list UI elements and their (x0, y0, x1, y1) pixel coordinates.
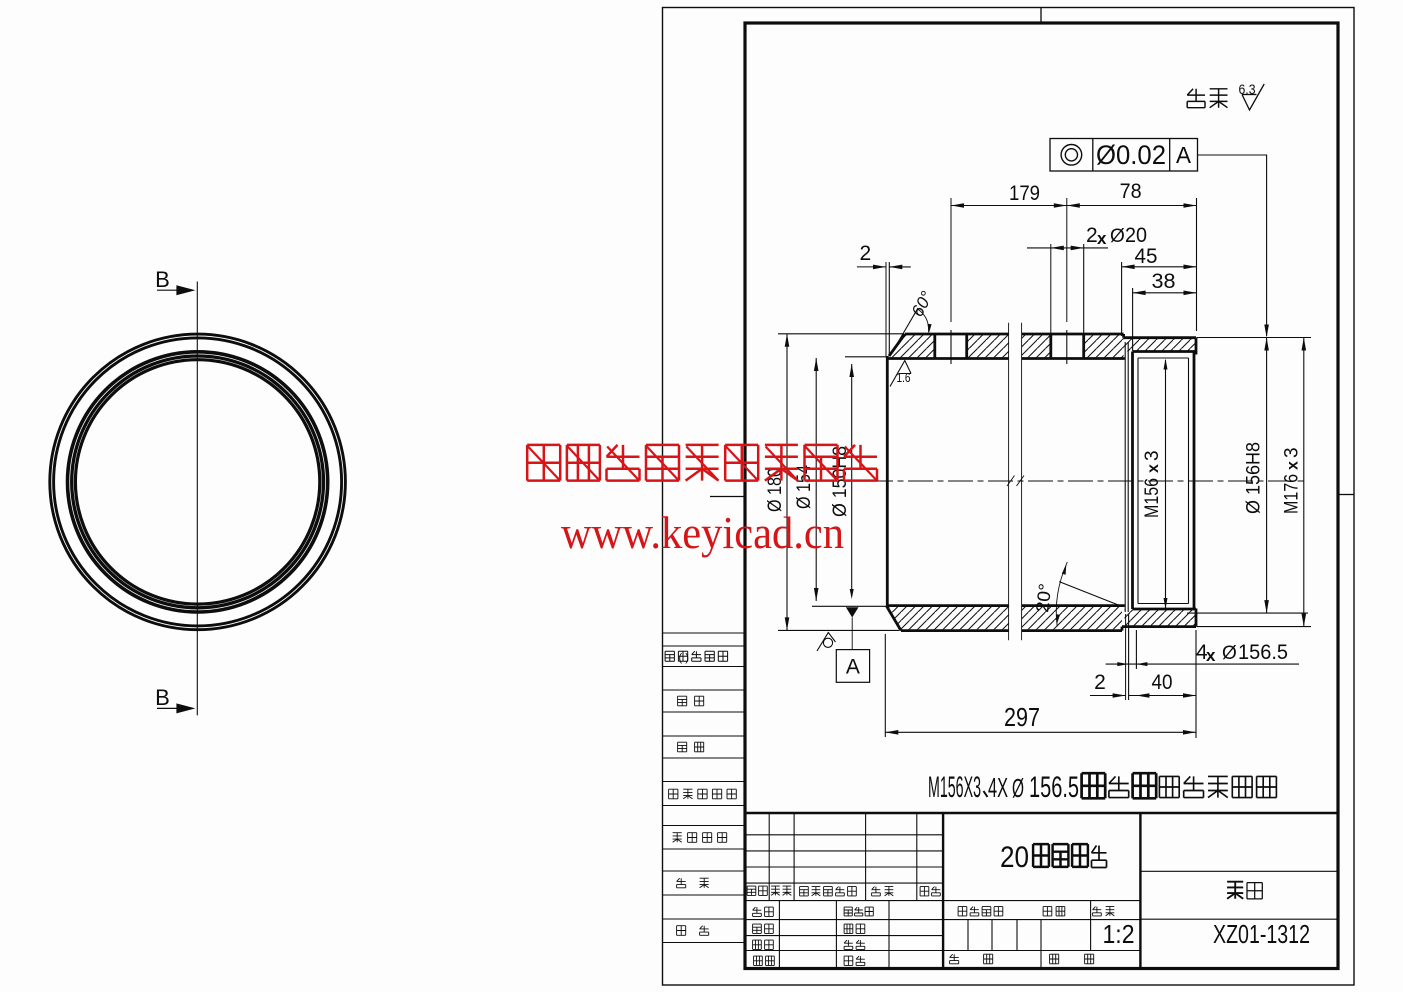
svg-text:20°: 20° (1032, 582, 1055, 613)
svg-text:1:2: 1:2 (1103, 919, 1135, 949)
svg-text:2: 2 (1086, 224, 1098, 247)
svg-text:2: 2 (860, 242, 872, 265)
svg-text:179: 179 (1009, 182, 1040, 205)
svg-text:Ø: Ø (1222, 643, 1237, 664)
svg-text:Ø 156H8: Ø 156H8 (1244, 442, 1265, 514)
svg-text:B: B (155, 267, 170, 292)
svg-text:( ): ( ) (679, 652, 689, 664)
svg-text:20: 20 (1125, 224, 1147, 247)
svg-text:Ø: Ø (1110, 226, 1125, 247)
svg-text:40: 40 (1152, 671, 1173, 694)
svg-text:M156: M156 (1142, 478, 1163, 518)
svg-text:A: A (846, 656, 860, 679)
svg-text:Ø: Ø (1012, 773, 1024, 803)
svg-text:2: 2 (1094, 671, 1106, 694)
svg-text:x: x (1145, 464, 1162, 473)
svg-text:3: 3 (1142, 450, 1163, 461)
svg-text:38: 38 (1152, 270, 1176, 293)
svg-text:A: A (1176, 142, 1192, 168)
svg-text:297: 297 (1004, 702, 1040, 732)
svg-text:Ø 180: Ø 180 (765, 468, 786, 512)
svg-text:x: x (1097, 229, 1107, 248)
svg-text:78: 78 (1120, 180, 1142, 203)
svg-text:XZ01-1312: XZ01-1312 (1213, 919, 1310, 949)
svg-text:4X: 4X (988, 772, 1008, 803)
svg-text:20: 20 (1000, 841, 1029, 874)
svg-text:156.5: 156.5 (1029, 771, 1079, 804)
svg-text:x: x (1285, 461, 1302, 470)
svg-text:45: 45 (1135, 245, 1158, 268)
svg-text:M156X3: M156X3 (928, 771, 981, 804)
svg-text:www.keyicad.cn: www.keyicad.cn (561, 507, 844, 558)
svg-text:M176: M176 (1282, 474, 1303, 514)
svg-text:156.5: 156.5 (1238, 641, 1288, 664)
svg-text:Ø0.02: Ø0.02 (1096, 140, 1166, 170)
svg-text:B: B (155, 685, 170, 710)
svg-text:x: x (1206, 646, 1216, 665)
svg-text:3: 3 (1282, 447, 1303, 458)
svg-text:1.6: 1.6 (897, 371, 911, 385)
